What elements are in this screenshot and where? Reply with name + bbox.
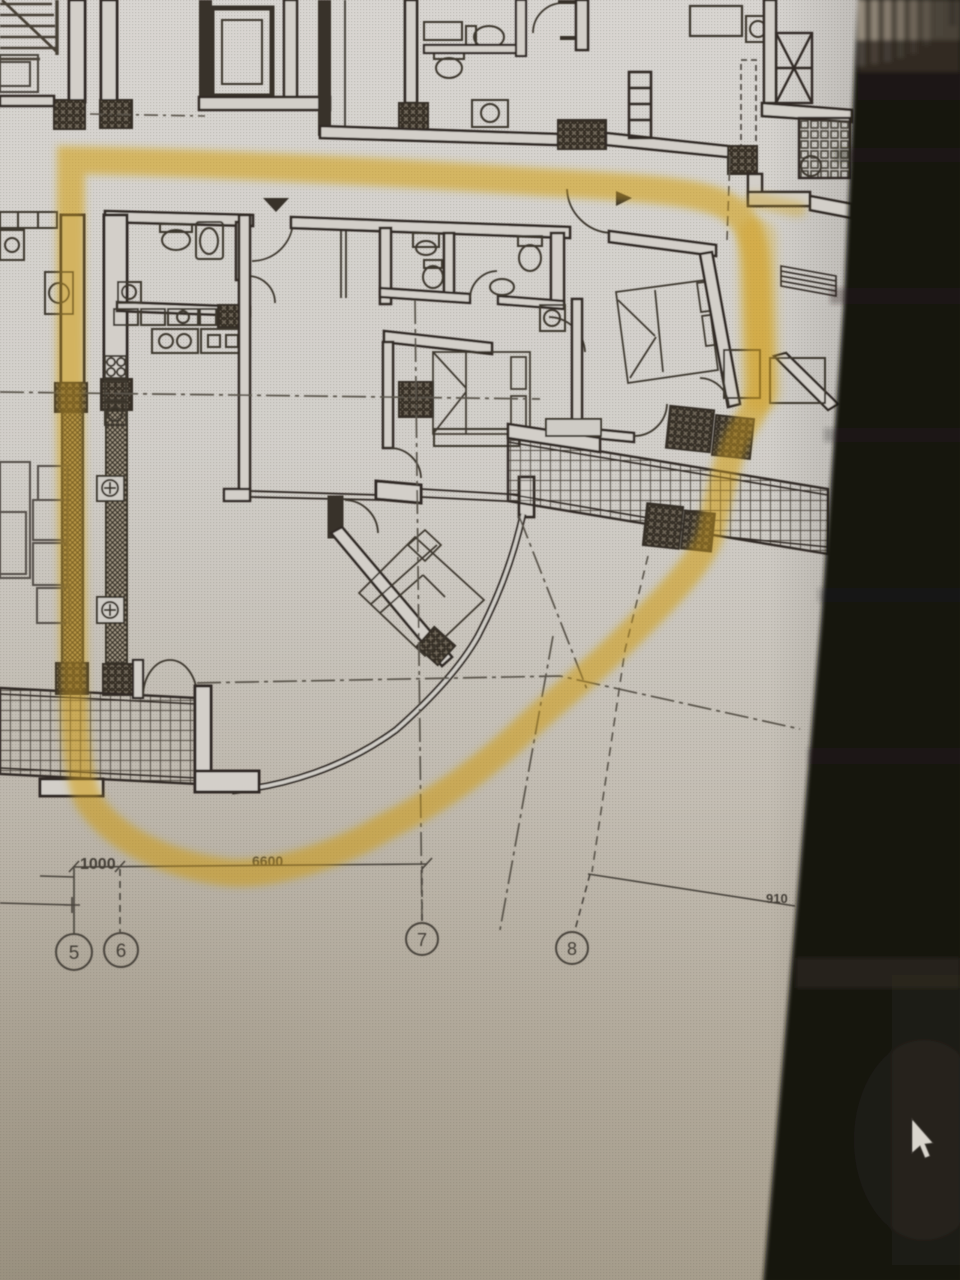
svg-text:6: 6	[116, 941, 127, 962]
svg-text:5: 5	[69, 943, 80, 964]
svg-text:1000: 1000	[80, 856, 116, 873]
svg-text:8: 8	[567, 939, 577, 959]
svg-text:7: 7	[417, 930, 427, 950]
svg-text:910: 910	[766, 891, 788, 906]
